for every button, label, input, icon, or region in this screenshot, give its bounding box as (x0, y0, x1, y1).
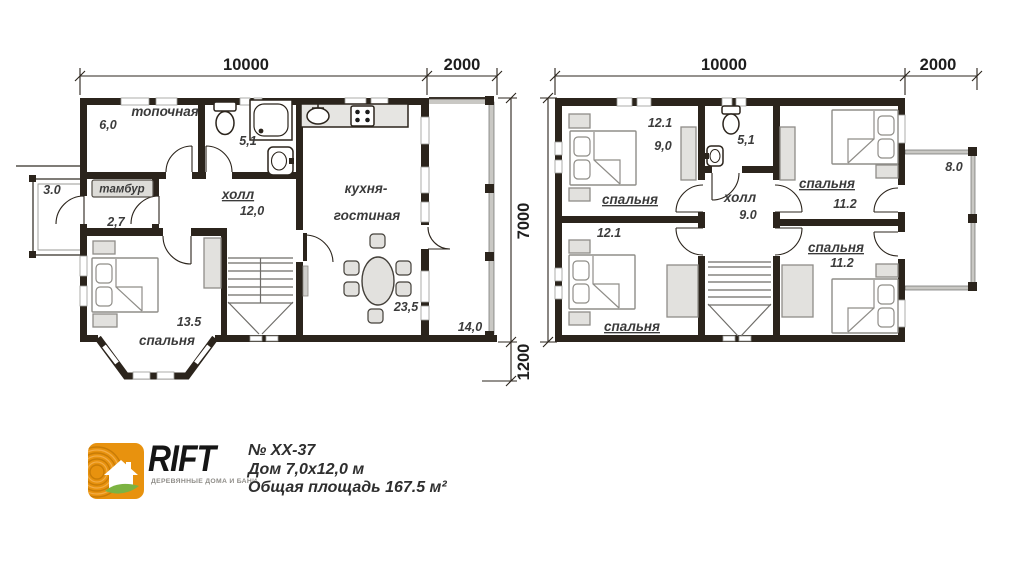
room-label-hall2: холл (723, 190, 757, 205)
bed-icon (832, 110, 898, 164)
sink-icon (705, 146, 723, 166)
dim-floor2-top-balcony: 2000 (920, 56, 957, 74)
stove-icon (351, 106, 374, 126)
floor2-plan: 10000 2000 (540, 56, 982, 347)
balcony (905, 147, 977, 291)
room-label-bedroom-tr: спальня (799, 176, 855, 191)
room-area-bedroom-tl: 12.1 (648, 116, 672, 130)
dim-floor1-top-main: 10000 (223, 56, 269, 74)
kitchen-counter (301, 104, 408, 127)
room-area-bedroom-tl-extra: 9,0 (654, 139, 671, 153)
dim-floor1-right-bay: 1200 (515, 344, 533, 381)
nightstand-icon (569, 188, 590, 201)
terrace (429, 96, 494, 340)
room-area-hall: 12,0 (240, 204, 264, 218)
bed-icon (569, 255, 635, 309)
room-label-bedroom: спальня (139, 333, 195, 348)
room-area-bedroom-tr: 11.2 (833, 197, 856, 211)
title-block: RIFT ДЕРЕВЯННЫЕ ДОМА И БАНИ № ХХ-37 Дом … (0, 438, 1024, 508)
rift-logo-icon (88, 443, 144, 499)
room-label-boiler: топочная (131, 104, 198, 119)
total-area: Общая площадь 167.5 м² (248, 479, 447, 498)
toilet-icon (722, 106, 740, 134)
stairs-icon (228, 258, 293, 334)
dim-floor1-top-terrace: 2000 (444, 56, 481, 74)
wardrobe-icon (681, 127, 696, 180)
room-label-hall: холл (221, 187, 255, 202)
room-area-kitchen: 23,5 (393, 300, 419, 314)
wardrobe-icon (204, 238, 221, 288)
room-area-hall2: 9.0 (739, 208, 756, 222)
house-size: Дом 7,0х12,0 м (248, 461, 447, 480)
room-area-terrace: 14,0 (458, 320, 482, 334)
brand-tagline: ДЕРЕВЯННЫЕ ДОМА И БАНИ (151, 478, 257, 485)
project-number: № ХХ-37 (248, 442, 447, 461)
brand-name: RIFT (148, 438, 215, 480)
wardrobe-icon (782, 265, 813, 317)
nightstand-icon (569, 240, 590, 253)
room-area-bathroom: 5,1 (239, 134, 256, 148)
nightstand-icon (93, 241, 115, 254)
bed-icon (570, 131, 636, 185)
dim-floor1-right-total: 7000 (515, 203, 533, 240)
nightstand-icon (876, 165, 898, 178)
room-area-bedroom-br: 11.2 (830, 256, 853, 270)
stairs-icon (708, 262, 771, 336)
wardrobe-icon (780, 127, 795, 180)
floor1-plan: 10000 2000 7000 1200 (16, 56, 533, 386)
room-area-bathroom2: 5,1 (737, 133, 754, 147)
dim-floor2-top-main: 10000 (701, 56, 747, 74)
room-area-boiler: 6,0 (99, 118, 116, 132)
room-area-balcony: 8.0 (945, 160, 962, 174)
nightstand-icon (569, 114, 590, 128)
bed-icon (92, 258, 158, 312)
bed-icon (832, 279, 898, 333)
room-area-vestibule: 2,7 (106, 215, 125, 229)
room-area-bedroom-bl: 12.1 (597, 226, 621, 240)
wardrobe-icon (667, 265, 698, 317)
tv-icon (303, 266, 308, 296)
room-label-bedroom-bl: спальня (604, 319, 660, 334)
project-info: № ХХ-37 Дом 7,0х12,0 м Общая площадь 167… (248, 442, 447, 498)
nightstand-icon (569, 312, 590, 325)
room-label-vestibule: тамбур (99, 184, 144, 196)
toilet-icon (214, 102, 236, 135)
sink-icon (268, 147, 294, 175)
floor2-doors (676, 173, 898, 256)
room-label-bedroom-tl: спальня (602, 192, 658, 207)
room-label-kitchen-1: кухня- (345, 181, 388, 196)
porch (16, 166, 80, 258)
nightstand-icon (93, 314, 117, 327)
room-area-porch: 3.0 (43, 183, 60, 197)
room-label-kitchen-2: гостиная (334, 208, 401, 223)
room-area-bedroom: 13.5 (177, 315, 202, 329)
nightstand-icon (876, 264, 898, 277)
room-label-bedroom-br: спальня (808, 240, 864, 255)
